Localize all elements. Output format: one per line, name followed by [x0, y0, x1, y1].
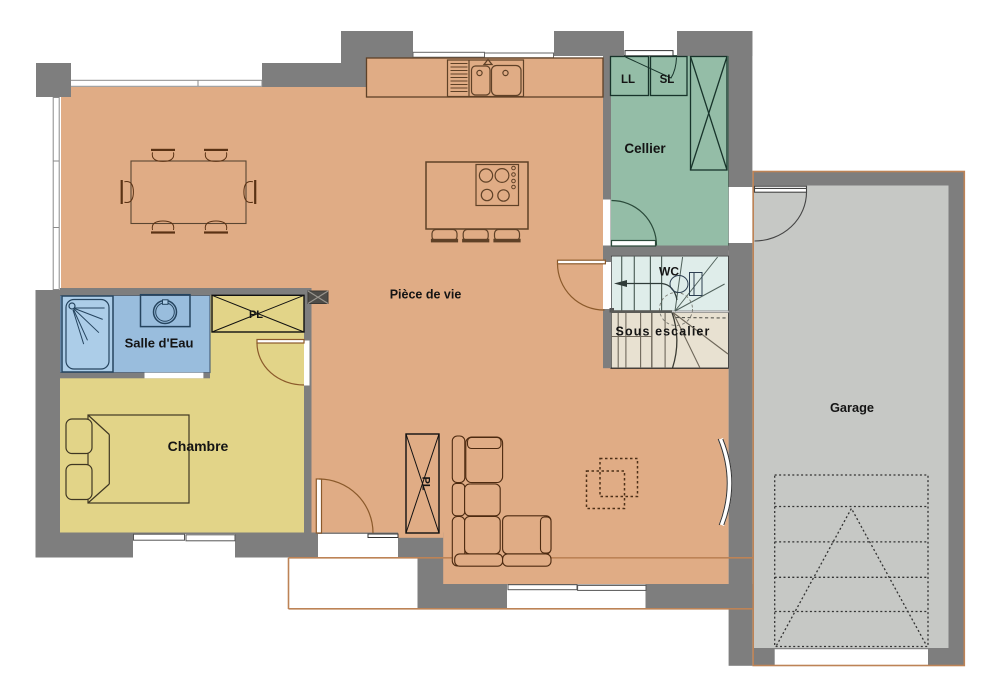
- svg-text:Sous escalier: Sous escalier: [616, 325, 711, 339]
- svg-text:Pièce de vie: Pièce de vie: [390, 288, 462, 302]
- svg-text:Chambre: Chambre: [168, 438, 229, 454]
- svg-text:PL: PL: [420, 476, 432, 490]
- svg-text:Garage: Garage: [830, 400, 874, 415]
- svg-text:SL: SL: [660, 74, 675, 86]
- svg-text:Salle d'Eau: Salle d'Eau: [125, 336, 194, 351]
- svg-text:LL: LL: [621, 74, 635, 86]
- svg-text:WC: WC: [659, 265, 679, 279]
- svg-text:Cellier: Cellier: [624, 141, 666, 156]
- svg-text:PL: PL: [249, 309, 263, 321]
